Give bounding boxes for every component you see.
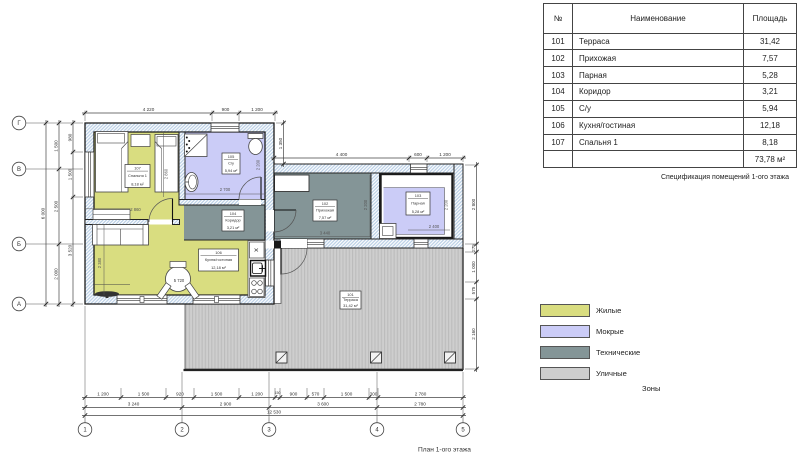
svg-text:1 500: 1 500 [341, 392, 353, 397]
svg-text:300: 300 [370, 392, 378, 397]
svg-text:Терраса: Терраса [343, 297, 359, 302]
svg-text:2 860: 2 860 [130, 207, 141, 212]
svg-text:570: 570 [312, 392, 320, 397]
svg-text:102: 102 [322, 201, 329, 206]
svg-text:275: 275 [471, 244, 476, 252]
svg-text:3 440: 3 440 [320, 230, 331, 235]
svg-text:105: 105 [228, 154, 235, 159]
svg-text:600: 600 [414, 152, 422, 157]
svg-text:2 000: 2 000 [53, 268, 58, 280]
svg-text:1 200: 1 200 [251, 392, 263, 397]
svg-text:6 000: 6 000 [40, 207, 45, 219]
svg-text:3 600: 3 600 [317, 402, 329, 407]
svg-text:3 240: 3 240 [128, 402, 140, 407]
svg-text:103: 103 [415, 193, 422, 198]
svg-text:В: В [17, 167, 21, 173]
svg-text:Коридор: Коридор [225, 218, 240, 223]
svg-text:5,94 м²: 5,94 м² [225, 168, 238, 173]
svg-text:3 520: 3 520 [67, 244, 72, 256]
svg-text:1 500: 1 500 [67, 168, 72, 180]
svg-text:575: 575 [471, 286, 476, 294]
svg-text:12,18 м²: 12,18 м² [211, 265, 226, 270]
svg-text:2 900: 2 900 [220, 402, 232, 407]
svg-text:2 500: 2 500 [53, 200, 58, 212]
svg-text:1 500: 1 500 [53, 140, 58, 152]
svg-text:7,57 м²: 7,57 м² [319, 215, 332, 220]
svg-text:2 780: 2 780 [414, 402, 426, 407]
svg-text:150: 150 [275, 391, 281, 395]
svg-text:31,42 м²: 31,42 м² [343, 303, 358, 308]
svg-text:2 160: 2 160 [471, 328, 476, 340]
svg-text:Кухня/гостиная: Кухня/гостиная [205, 257, 232, 262]
svg-text:Б: Б [17, 242, 21, 248]
svg-text:8,18 м²: 8,18 м² [131, 182, 144, 187]
svg-text:Спальня 1: Спальня 1 [128, 173, 147, 178]
svg-text:2 780: 2 780 [415, 392, 427, 397]
svg-text:5,28 м²: 5,28 м² [412, 209, 425, 214]
svg-text:1 200: 1 200 [251, 107, 263, 112]
svg-text:2 400: 2 400 [429, 224, 440, 229]
svg-text:1 200: 1 200 [439, 152, 451, 157]
svg-text:2 200: 2 200 [256, 159, 261, 170]
svg-text:3,21 м²: 3,21 м² [227, 225, 240, 230]
svg-text:106: 106 [215, 250, 222, 255]
svg-text:1 200: 1 200 [97, 392, 109, 397]
svg-text:1 500: 1 500 [138, 392, 150, 397]
svg-text:Прихожая: Прихожая [316, 208, 334, 213]
svg-text:900: 900 [222, 107, 230, 112]
svg-text:2 800: 2 800 [471, 198, 476, 210]
svg-text:900: 900 [290, 392, 298, 397]
svg-text:4 220: 4 220 [143, 107, 155, 112]
svg-text:2 200: 2 200 [444, 199, 449, 210]
svg-text:1 000: 1 000 [471, 261, 476, 273]
svg-text:2 700: 2 700 [220, 187, 231, 192]
svg-text:2 860: 2 860 [163, 168, 168, 179]
svg-text:980: 980 [67, 133, 72, 141]
svg-text:107: 107 [134, 166, 141, 171]
svg-text:104: 104 [230, 211, 237, 216]
svg-text:1 500: 1 500 [211, 392, 223, 397]
svg-text:Парная: Парная [411, 201, 425, 206]
svg-text:План 1-ого этажа: План 1-ого этажа [418, 447, 471, 454]
svg-text:1 350: 1 350 [278, 137, 283, 149]
svg-text:2 380: 2 380 [97, 257, 102, 268]
svg-text:С/у: С/у [228, 161, 234, 166]
svg-text:2 200: 2 200 [363, 199, 368, 210]
svg-text:920: 920 [176, 392, 184, 397]
svg-text:5 720: 5 720 [174, 278, 185, 283]
svg-text:А: А [17, 302, 21, 308]
svg-text:4 400: 4 400 [336, 152, 348, 157]
